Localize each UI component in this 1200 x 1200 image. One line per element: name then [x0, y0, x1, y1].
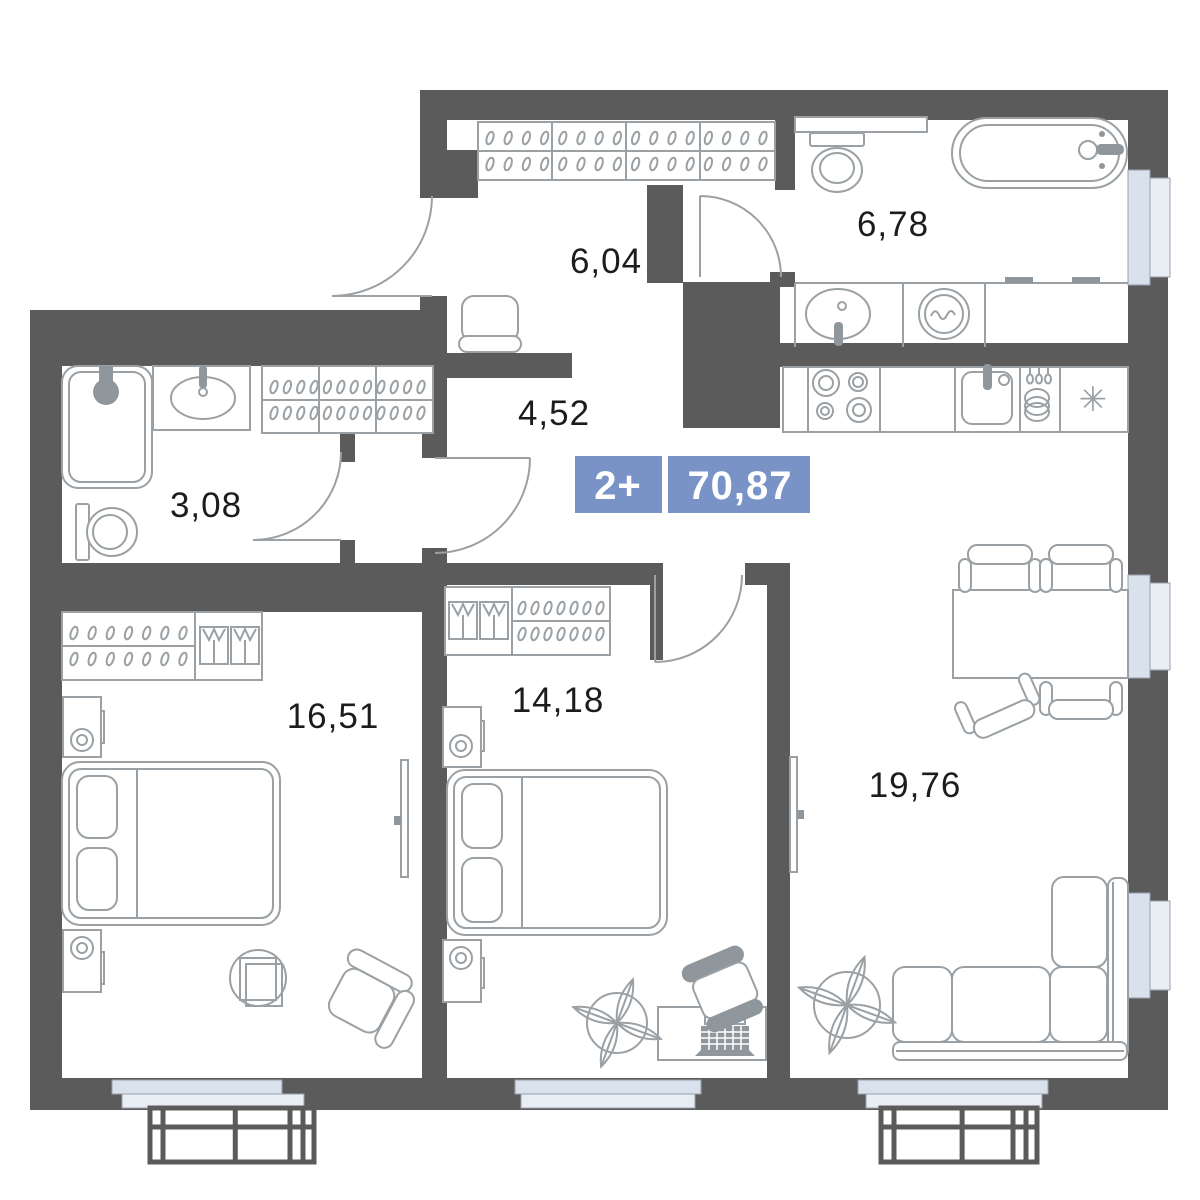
toilet-small-icon — [76, 504, 137, 560]
wall-shaft — [683, 282, 780, 428]
window-bathroom — [1128, 170, 1170, 285]
sink-icon — [806, 289, 870, 346]
label-bathroom-small: 3,08 — [170, 486, 242, 525]
window-sofa — [1128, 893, 1170, 998]
wall-bedroom1-top — [30, 563, 422, 612]
window-bedroom-1 — [112, 1080, 304, 1108]
shower-icon — [62, 366, 152, 488]
vestibule-door — [435, 458, 530, 553]
wall-hallway-pier — [647, 185, 683, 283]
wall-topleft-band — [30, 310, 447, 366]
vanity-small — [153, 366, 250, 430]
wall-left — [30, 310, 62, 1110]
wardrobe-vestibule — [262, 366, 433, 433]
floor-plan-page: ✳ — [0, 0, 1200, 1200]
badge-total-area: 70,87 — [687, 464, 792, 508]
window-dining — [1128, 575, 1170, 678]
kitchen-counter: ✳ — [783, 364, 1128, 432]
wall-bedroom2-jamb — [650, 563, 663, 660]
dining-chair — [1040, 682, 1122, 719]
room-bathroom-main — [795, 117, 1128, 347]
dining-table — [953, 590, 1128, 678]
wall-bath-west — [775, 90, 795, 190]
room-bathroom-small — [62, 366, 250, 560]
tv-icon — [394, 760, 408, 877]
double-bed — [62, 762, 280, 925]
nightstand — [63, 930, 104, 992]
badge-rooms-count: 2+ — [594, 464, 642, 508]
wall-bath-door-stub — [770, 272, 795, 287]
bathroom-main-door — [700, 196, 781, 277]
label-bedroom-2: 14,18 — [512, 681, 605, 720]
bathtub-icon — [952, 118, 1127, 188]
wall-hallway-west — [420, 90, 447, 198]
apartment-badge: 2+ 70,87 — [575, 456, 810, 513]
wardrobe-bedroom-1 — [62, 612, 262, 680]
wall-bath-small-stub-a — [340, 433, 355, 462]
bench-stool — [459, 296, 521, 352]
washing-machine-icon — [919, 289, 969, 339]
wardrobe-bedroom-2 — [445, 587, 610, 655]
label-bathroom-main: 6,78 — [857, 205, 929, 244]
tv-icon — [790, 757, 804, 872]
floor-plan: ✳ — [0, 0, 1200, 1200]
shelf — [795, 117, 927, 132]
dining-chair — [959, 545, 1041, 592]
wardrobe-hallway — [478, 122, 775, 180]
label-bedroom-1: 16,51 — [287, 697, 380, 736]
wall-hall-corridor-stub — [433, 353, 572, 378]
label-hallway: 6,04 — [570, 242, 642, 281]
wall-corridor-south — [447, 563, 650, 585]
room-bedroom-2 — [443, 587, 768, 1060]
nightstand — [443, 940, 484, 1002]
room-bedroom-1 — [62, 612, 424, 1051]
kitchen-sink-icon — [962, 364, 1012, 424]
wall-bath-small-stub-b — [340, 540, 355, 563]
dining-chair-pulled — [953, 672, 1045, 745]
wall-corner-chunk — [447, 150, 478, 198]
balcony-railings — [150, 1108, 1037, 1162]
dining-chair — [1040, 545, 1122, 592]
bedroom-2-door — [655, 575, 742, 662]
wall-w2 — [767, 563, 790, 1078]
toilet-icon — [810, 133, 864, 192]
bathroom-small-door — [253, 452, 341, 540]
double-bed — [447, 770, 667, 935]
corner-sofa — [893, 877, 1128, 1060]
label-corridor: 4,52 — [518, 394, 590, 433]
nightstand — [443, 707, 484, 767]
fridge-icon: ✳ — [1079, 380, 1108, 420]
wall-entrance-stub — [420, 296, 447, 312]
entrance-door — [332, 196, 432, 296]
armchair — [317, 946, 423, 1051]
window-living — [858, 1080, 1048, 1108]
wall-under-bathroom — [780, 343, 1128, 367]
side-table — [230, 950, 286, 1006]
label-living: 19,76 — [869, 766, 962, 805]
window-bedroom-2 — [515, 1080, 701, 1108]
nightstand — [63, 697, 104, 757]
